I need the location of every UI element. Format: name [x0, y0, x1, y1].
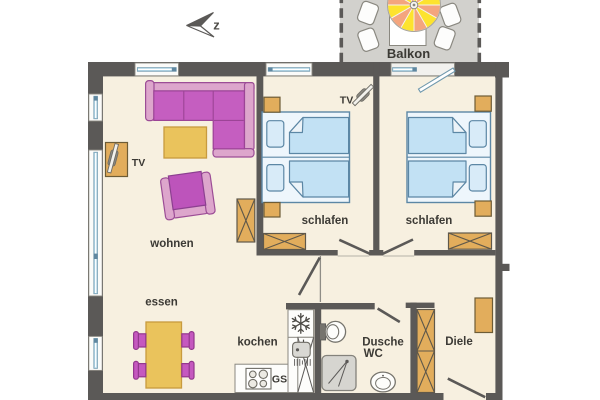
svg-text:TV: TV [340, 95, 353, 107]
svg-text:Diele: Diele [445, 336, 473, 348]
svg-text:GS: GS [272, 374, 287, 386]
svg-text:WC: WC [364, 348, 383, 360]
svg-text:schlafen: schlafen [406, 215, 453, 227]
svg-text:z: z [213, 18, 220, 33]
svg-text:TV: TV [132, 157, 145, 169]
svg-text:Dusche: Dusche [362, 337, 404, 349]
svg-text:essen: essen [145, 297, 178, 309]
svg-text:Balkon: Balkon [387, 46, 430, 61]
svg-text:schlafen: schlafen [302, 215, 349, 227]
svg-text:kochen: kochen [237, 337, 277, 349]
svg-text:wohnen: wohnen [149, 238, 193, 250]
